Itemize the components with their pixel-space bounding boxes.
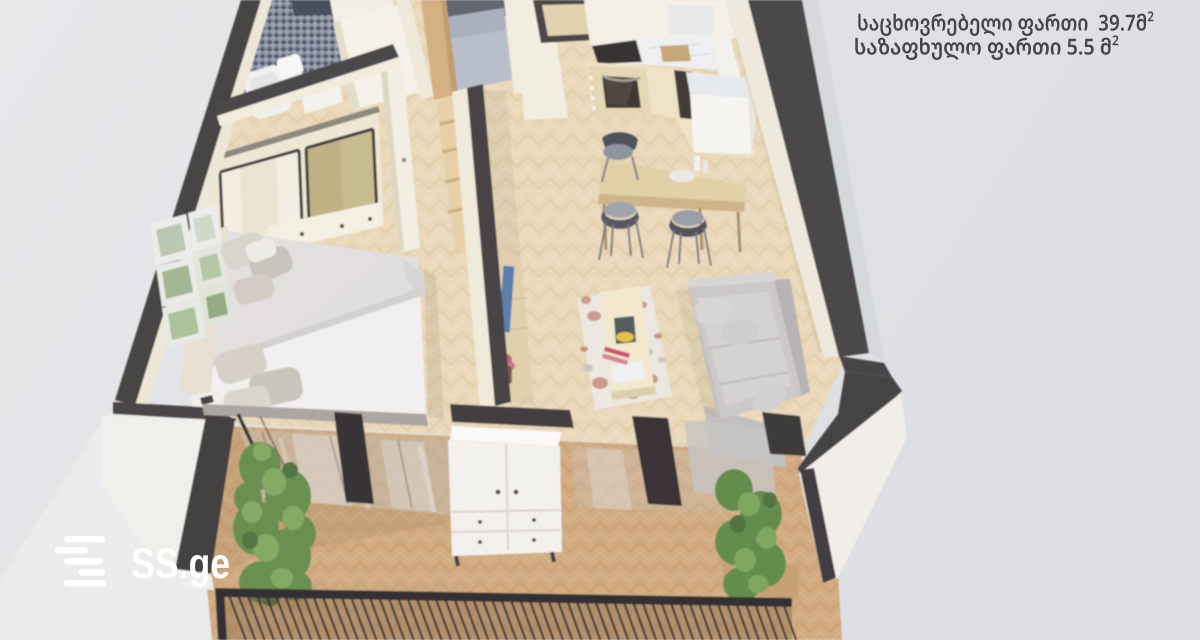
svg-text:SS.ge: SS.ge — [131, 540, 230, 588]
